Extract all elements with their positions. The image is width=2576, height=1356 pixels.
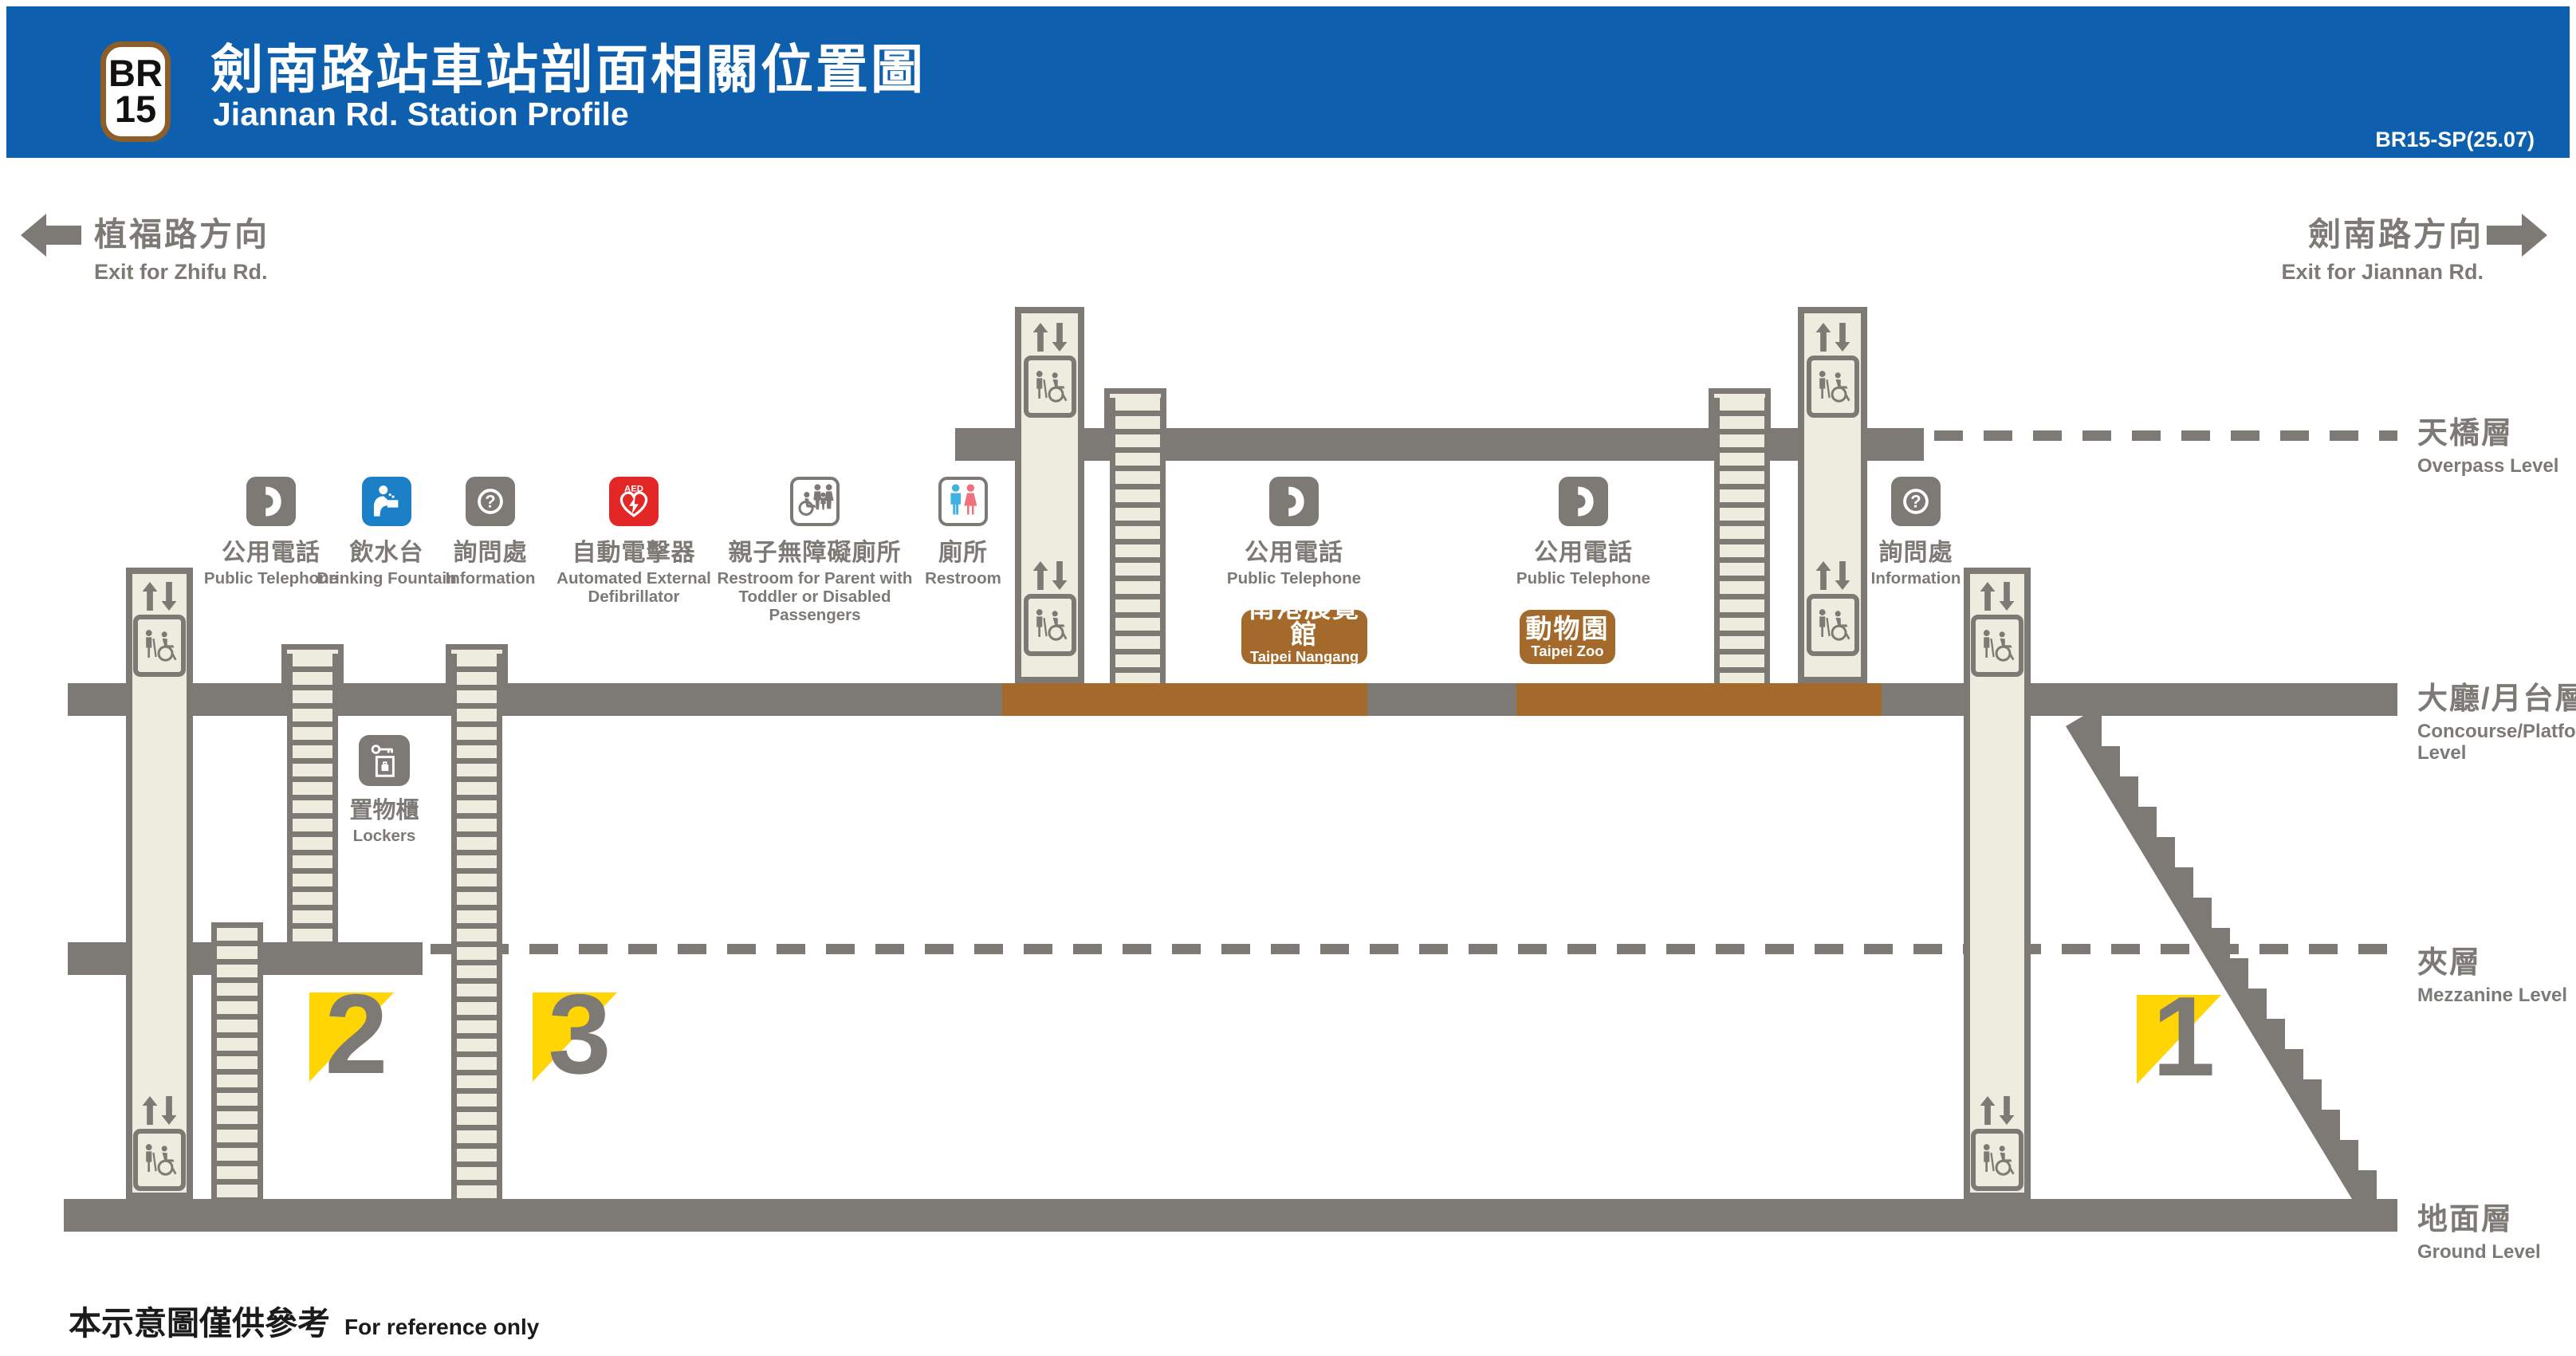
facility-lockers: 置物櫃 Lockers xyxy=(265,735,504,846)
facility-en-label: Information xyxy=(1871,570,1961,588)
overpass-level-band xyxy=(955,428,1924,461)
public-telephone-icon xyxy=(1559,477,1608,526)
family-accessible-restroom-icon xyxy=(790,477,840,526)
level-concourse-zh: 大廳/月台層 xyxy=(2417,674,2576,717)
accessible-elevator-icon xyxy=(1971,1129,2023,1191)
sign-zh: 動物園 xyxy=(1520,615,1615,642)
level-overpass-en: Overpass Level xyxy=(2417,456,2558,478)
left-direction-arrow-icon xyxy=(21,212,81,258)
facility-en-label: Toddler or Disabled Passengers xyxy=(695,588,934,625)
platform-band-nangang xyxy=(1002,683,1367,716)
up-down-arrows-icon xyxy=(1812,323,1854,352)
level-mezzanine-en: Mezzanine Level xyxy=(2417,985,2567,1007)
level-label-ground: 地面層 Ground Level xyxy=(2417,1194,2541,1264)
accessible-elevator-icon xyxy=(1971,615,2023,677)
exit-badge-2: 2 xyxy=(309,992,394,1082)
sign-zh: 南港展覽館 xyxy=(1241,595,1367,647)
footnote-zh: 本示意圖僅供參考 xyxy=(69,1296,330,1344)
facility-en-label: Public Telephone xyxy=(1227,570,1361,588)
accessible-elevator-icon xyxy=(1807,356,1859,418)
elevator-icon-group xyxy=(1970,1096,2024,1191)
elevator-icon-group xyxy=(1804,323,1861,418)
lockers-icon xyxy=(359,735,410,786)
header-bar: BR 15 劍南路站車站剖面相關位置圖 Jiannan Rd. Station … xyxy=(6,6,2570,158)
line-station-badge: BR 15 xyxy=(100,41,171,142)
platform-band-zoo xyxy=(1516,683,1882,716)
restroom-icon xyxy=(938,477,988,526)
page-title-en: Jiannan Rd. Station Profile xyxy=(213,96,629,133)
level-ground-zh: 地面層 xyxy=(2417,1194,2541,1238)
stair-overpass-to-platform-left xyxy=(1110,398,1166,683)
facility-en-label: Defibrillator xyxy=(556,588,711,607)
accessible-elevator-icon xyxy=(133,1129,186,1191)
up-down-arrows-icon xyxy=(1976,1096,2018,1125)
elevator-icon-group xyxy=(1970,582,2024,677)
station-profile-diagram: BR 15 劍南路站車站剖面相關位置圖 Jiannan Rd. Station … xyxy=(0,0,2576,1356)
footnote: 本示意圖僅供參考 For reference only xyxy=(69,1296,539,1344)
level-overpass-zh: 天橋層 xyxy=(2417,408,2558,452)
facility-public-telephone-3: 公用電話 Public Telephone xyxy=(1464,477,1703,588)
accessible-elevator-icon xyxy=(1807,594,1859,656)
badge-line-code: BR xyxy=(108,56,163,92)
accessible-elevator-icon xyxy=(1024,594,1076,656)
up-down-arrows-icon xyxy=(139,1096,180,1125)
elevator-far-right xyxy=(1964,568,2031,1199)
direction-right: 劍南路方向 Exit for Jiannan Rd. xyxy=(2281,207,2484,285)
destination-sign-zoo: 動物園 Taipei Zoo xyxy=(1520,610,1615,664)
sign-en1: Taipei Nangang xyxy=(1241,650,1367,665)
facility-information-2: 詢問處 Information xyxy=(1796,477,2035,588)
stair-overpass-to-platform-right xyxy=(1714,398,1770,683)
elevator-far-left xyxy=(126,568,193,1199)
drawing-code: BR15-SP(25.07) xyxy=(2375,128,2535,152)
public-telephone-icon xyxy=(1269,477,1319,526)
direction-left: 植福路方向 Exit for Zhifu Rd. xyxy=(94,207,269,285)
aed-icon xyxy=(609,477,659,526)
up-down-arrows-icon xyxy=(1029,323,1071,352)
level-ground-en: Ground Level xyxy=(2417,1242,2541,1264)
lockers-en-label: Lockers xyxy=(353,827,416,846)
facility-en-label: Restroom xyxy=(925,570,1001,588)
facility-restroom: 廁所 Restroom xyxy=(844,477,1083,588)
level-concourse-en1: Concourse/Platform xyxy=(2417,721,2576,743)
stair-mezzanine-to-ground xyxy=(211,922,263,1199)
facility-zh-label: 公用電話 xyxy=(1245,533,1343,568)
sign-en2: Exhibition Center xyxy=(1241,665,1367,680)
level-concourse-en2: Level xyxy=(2417,743,2576,764)
badge-station-number: 15 xyxy=(115,92,156,128)
facility-en-label: Public Telephone xyxy=(1516,570,1650,588)
exit-number: 3 xyxy=(533,988,627,1082)
level-label-mezzanine: 夾層 Mezzanine Level xyxy=(2417,937,2567,1007)
footnote-en: For reference only xyxy=(344,1315,539,1340)
exit-badge-3: 3 xyxy=(533,992,617,1082)
facility-zh-label: 詢問處 xyxy=(1879,533,1953,568)
facility-zh-label: 廁所 xyxy=(938,533,988,568)
facility-public-telephone-2: 公用電話 Public Telephone xyxy=(1174,477,1414,588)
lockers-zh-label: 置物櫃 xyxy=(349,792,419,825)
level-concourse-en: Concourse/Platform Level xyxy=(2417,721,2576,764)
facility-zh-label: 公用電話 xyxy=(1534,533,1633,568)
diagonal-stair-concourse-to-ground xyxy=(2065,709,2384,1220)
elevator-icon-group xyxy=(132,582,187,677)
information-icon xyxy=(466,477,515,526)
sign-en1: Taipei Zoo xyxy=(1520,644,1615,659)
exit-number: 1 xyxy=(2137,990,2231,1084)
overpass-level-dashed-line xyxy=(1934,430,2397,441)
direction-right-en: Exit for Jiannan Rd. xyxy=(2281,260,2484,285)
destination-sign-nangang: 南港展覽館 Taipei Nangang Exhibition Center xyxy=(1241,610,1367,664)
exit-badge-1: 1 xyxy=(2137,995,2221,1084)
page-title-zh: 劍南路站車站剖面相關位置圖 xyxy=(210,27,926,104)
elevator-icon-group xyxy=(1021,323,1078,418)
exit-number: 2 xyxy=(309,988,403,1082)
accessible-elevator-icon xyxy=(133,615,186,677)
ground-level-band xyxy=(64,1199,2397,1232)
direction-left-zh: 植福路方向 xyxy=(94,207,269,255)
accessible-elevator-icon xyxy=(1024,356,1076,418)
sign-en: Taipei Nangang Exhibition Center xyxy=(1241,650,1367,679)
level-label-overpass: 天橋層 Overpass Level xyxy=(2417,408,2558,478)
right-direction-arrow-icon xyxy=(2487,212,2547,258)
elevator-icon-group xyxy=(132,1096,187,1191)
level-label-concourse: 大廳/月台層 Concourse/Platform Level xyxy=(2417,674,2576,764)
direction-left-en: Exit for Zhifu Rd. xyxy=(94,260,269,285)
direction-right-zh: 劍南路方向 xyxy=(2281,207,2484,255)
information-icon xyxy=(1891,477,1941,526)
facility-zh-label: 自動電擊器 xyxy=(572,533,696,568)
facility-en-label: Automated External xyxy=(556,570,711,588)
level-mezzanine-zh: 夾層 xyxy=(2417,937,2567,981)
